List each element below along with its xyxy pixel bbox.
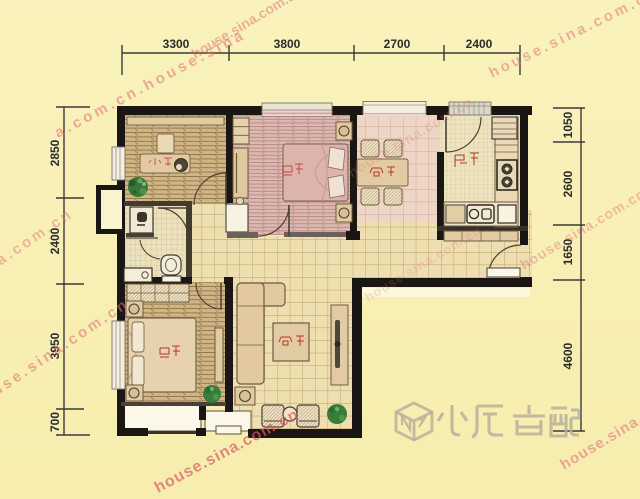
svg-text:2850: 2850 bbox=[48, 139, 62, 166]
svg-text:3300: 3300 bbox=[163, 37, 190, 51]
svg-text:2400: 2400 bbox=[466, 37, 493, 51]
svg-text:4600: 4600 bbox=[561, 342, 575, 369]
svg-text:house.sina.com.cn: house.sina.com.cn bbox=[486, 0, 640, 82]
svg-text:3800: 3800 bbox=[274, 37, 301, 51]
svg-text:1050: 1050 bbox=[561, 111, 575, 138]
svg-text:house.sina.com.cn: house.sina.com.cn bbox=[0, 205, 76, 323]
svg-text:house.sina.com.cn: house.sina.com.cn bbox=[517, 185, 640, 272]
svg-text:2600: 2600 bbox=[561, 170, 575, 197]
svg-text:2700: 2700 bbox=[384, 37, 411, 51]
svg-text:700: 700 bbox=[48, 412, 62, 432]
